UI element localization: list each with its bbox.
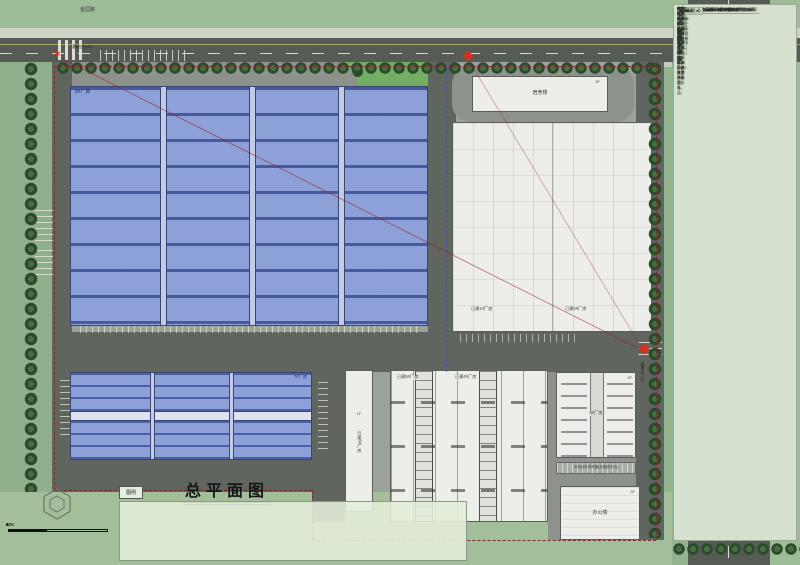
bike-shed: 非机动车停车棚(充电桩车位) bbox=[556, 462, 636, 474]
floor-tag-office: 3F bbox=[630, 489, 635, 494]
building-label-3: 3#厂房 bbox=[589, 411, 602, 416]
entrance-marker-west: ✶ bbox=[52, 48, 62, 60]
sidebar-content: 总经济技术指标规划用地面积：82864.0平方米规划建筑面积：54035.2平方… bbox=[673, 4, 797, 541]
roof-dashes bbox=[391, 445, 547, 448]
stamp-hexagon bbox=[42, 488, 72, 520]
boundary-line-left bbox=[54, 66, 55, 490]
tree-column-left bbox=[22, 62, 42, 492]
dormitory-building: 宿舍楼 5F bbox=[472, 76, 608, 112]
roof-gap bbox=[229, 373, 234, 459]
office-building: 办公楼 3F bbox=[560, 486, 640, 540]
legend-grid: 道路室内标高地面小车停车车位二期用地红线室外标高充电桩停车位一期用地红线测量坐标… bbox=[119, 501, 467, 561]
note-line: 并按规范设置消防登高操作场地。 bbox=[677, 7, 685, 46]
floor-tag-3: 3F bbox=[627, 375, 632, 380]
floor-tag-6: 1F bbox=[357, 411, 362, 416]
building-label-4: 已建4#厂房 bbox=[455, 375, 476, 380]
roof-gap bbox=[160, 87, 167, 325]
site-plan-drawing: 金园路 8#厂房 7#厂房 宿舍楼 5F 已建 bbox=[0, 0, 800, 565]
building-label-6: 已建6#厂房 bbox=[357, 431, 362, 452]
roof-gap bbox=[338, 87, 345, 325]
scalebar bbox=[8, 529, 108, 532]
boundary-line-right bbox=[656, 66, 657, 540]
factory-7-building: 7#厂房 bbox=[70, 372, 312, 460]
building-label-office: 办公楼 bbox=[592, 511, 607, 517]
roof-dashes bbox=[391, 489, 547, 492]
building-label-2: 已建2#厂房 bbox=[565, 307, 586, 312]
scalebar-tick: 60M bbox=[6, 522, 14, 527]
factory-8-building: 8#厂房 bbox=[70, 86, 428, 326]
factory-12-building: 已建1#厂房 已建2#厂房 bbox=[452, 122, 652, 332]
roof-skylight-band bbox=[71, 411, 311, 421]
roof-gap bbox=[150, 373, 155, 459]
south-horizontal-road bbox=[52, 460, 312, 492]
roof-stripes bbox=[607, 373, 633, 457]
building-divider bbox=[552, 123, 553, 331]
phase-boundary-line bbox=[446, 66, 447, 372]
building-label-7: 7#厂房 bbox=[294, 375, 307, 380]
tree-row-bottom-right bbox=[672, 541, 800, 558]
building-label-5: 已建5#厂房 bbox=[397, 375, 418, 380]
legend-header: 图例 bbox=[119, 486, 143, 499]
factory-3-building: 3#厂房 3F bbox=[556, 372, 636, 458]
factory-6-building: 1F 已建6#厂房 bbox=[345, 370, 373, 512]
shed-label: 非机动车停车棚(充电桩车位) bbox=[574, 466, 618, 470]
roof-dashes bbox=[391, 401, 547, 404]
building-label-1: 已建1#厂房 bbox=[471, 307, 492, 312]
parking-row-south-road bbox=[318, 382, 328, 450]
roof-gap bbox=[249, 87, 256, 325]
loading-dock-row bbox=[80, 326, 420, 333]
boundary-line-top bbox=[54, 66, 656, 67]
entrance-label-top: 基地出入口 bbox=[72, 45, 92, 49]
building-label-8: 8#厂房 bbox=[75, 90, 91, 96]
floor-tag-dorm: 5F bbox=[595, 79, 600, 84]
building-label-dorm: 宿舍楼 bbox=[532, 91, 547, 97]
tree-row-top bbox=[56, 60, 656, 77]
road-name-label: 金园路 bbox=[80, 8, 95, 14]
roof-stripes bbox=[561, 373, 587, 457]
south-vertical-road bbox=[312, 372, 345, 522]
parking-row-mid-road bbox=[460, 334, 580, 342]
entrance-label-right: 基地出入口 bbox=[640, 362, 644, 382]
factory-45-building: 已建5#厂房 已建4#厂房 bbox=[390, 370, 548, 522]
